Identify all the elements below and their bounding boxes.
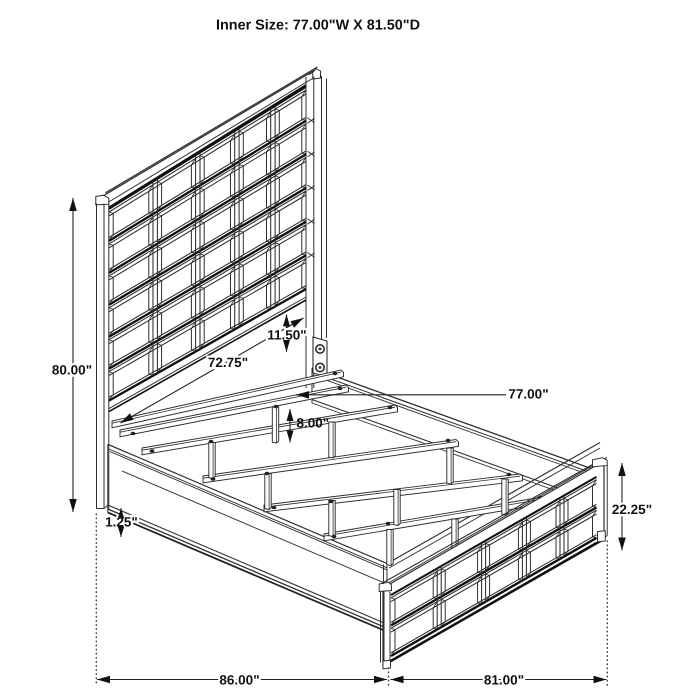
svg-text:86.00": 86.00" bbox=[219, 673, 259, 688]
svg-text:77.00": 77.00" bbox=[508, 387, 548, 402]
svg-text:81.00": 81.00" bbox=[484, 673, 524, 688]
svg-text:8.00": 8.00" bbox=[297, 416, 330, 431]
svg-text:72.75": 72.75" bbox=[208, 355, 248, 370]
svg-text:22.25": 22.25" bbox=[612, 502, 652, 517]
svg-text:Inner Size: 77.00"W X 81.50"D: Inner Size: 77.00"W X 81.50"D bbox=[216, 18, 420, 34]
svg-text:80.00": 80.00" bbox=[52, 363, 92, 378]
